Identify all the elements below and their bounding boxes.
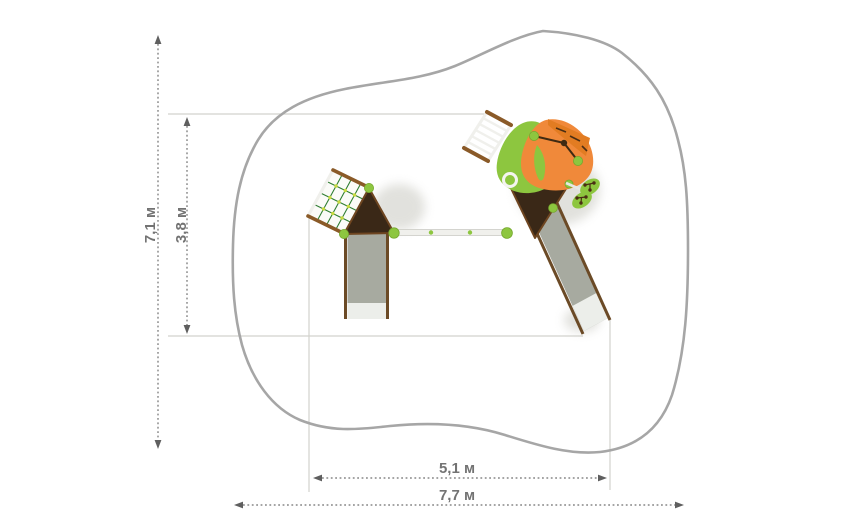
left-slide (346, 234, 388, 319)
post-cap (549, 204, 558, 213)
dimension-label-safety-width: 7,7 м (439, 487, 475, 504)
left-slide-end (348, 303, 387, 319)
plan-drawing: 7,1 м 3,8 м 5,1 м 7,7 м (0, 0, 850, 530)
post-cap (364, 183, 373, 192)
post-cap (502, 228, 513, 239)
arrow-down-safety-height (155, 440, 162, 449)
arrow-up-equipment-height (184, 117, 191, 126)
arrow-right-equipment-width (598, 475, 607, 482)
playground-plan-view: 7,1 м 3,8 м 5,1 м 7,7 м (0, 0, 850, 530)
roof-green-knob (573, 156, 582, 165)
arrow-left-safety-width (234, 502, 243, 509)
bridge-step-dot (468, 230, 472, 234)
dimension-label-equipment-width: 5,1 м (439, 460, 475, 477)
dimension-lines (158, 44, 675, 505)
bridge-step-dot (429, 230, 433, 234)
safety-zone-outline (233, 31, 688, 453)
post-cap (339, 229, 348, 238)
arrow-down-equipment-height (184, 325, 191, 334)
arrow-up-safety-height (155, 35, 162, 44)
dimension-label-equipment-height: 3,8 м (173, 207, 190, 243)
roof-green-knob (529, 131, 538, 140)
balance-bridge (396, 230, 505, 236)
arrow-left-equipment-width (313, 475, 322, 482)
roof-brown-knob (561, 140, 567, 146)
post-cap (389, 228, 399, 238)
main-tower (464, 112, 610, 334)
dimension-label-safety-height: 7,1 м (142, 207, 159, 243)
bridge-beam (396, 230, 505, 236)
arrow-right-safety-width (675, 502, 684, 509)
left-slide-bed (348, 234, 387, 304)
